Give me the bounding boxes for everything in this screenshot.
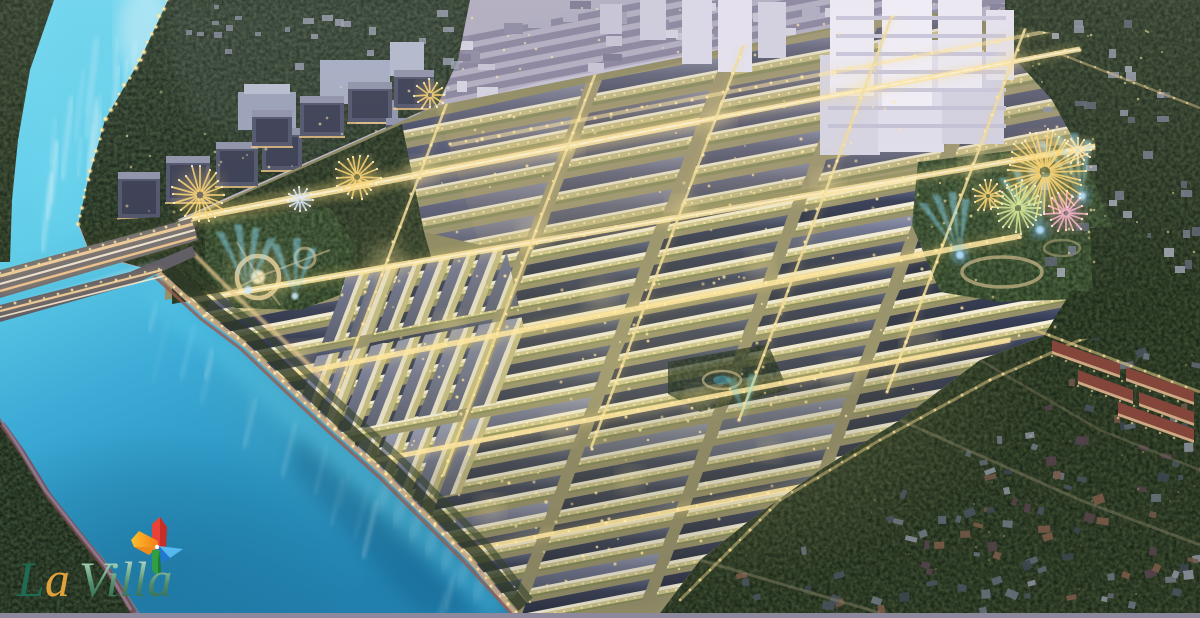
svg-text:LaVilla: LaVilla: [16, 551, 172, 607]
